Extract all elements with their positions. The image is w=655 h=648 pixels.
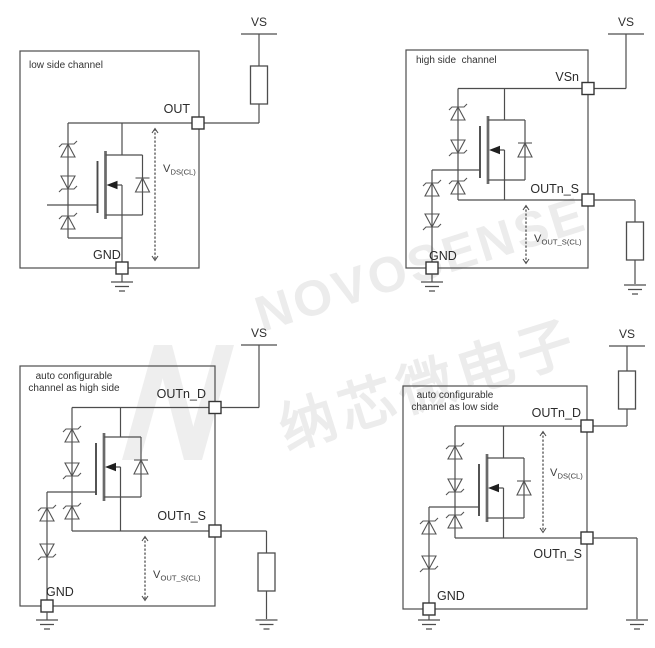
gate-zener-chain [446,426,464,538]
vs-supply: VS [204,15,277,123]
vs-label: VS [618,15,634,29]
ground-icon [36,620,58,629]
diagram-title: low side channel [29,60,103,71]
output-ground-branch [593,538,648,629]
out-s-pad-label: OUTn_S [530,182,579,196]
channel-box [20,51,199,268]
diagram-title-line2: channel as low side [411,402,499,413]
gnd-pad [426,262,438,274]
ground-icon [256,620,278,629]
out-d-pad [209,402,221,414]
gate-zener-chain [449,89,467,201]
vs-supply: VS [594,15,644,89]
vs-label: VS [619,327,635,341]
diagram-low-side: low side channel VS V DS(CL) OU [20,15,277,291]
resistor [258,553,275,591]
out-s-pad [581,532,593,544]
diagram-title-line1: auto configurable [417,390,494,401]
watermark: NOVOSENSE 纳芯微电子 [122,186,593,462]
ground-icon [111,282,133,291]
ground-icon [418,620,440,629]
mosfet-symbol [480,116,532,184]
gnd-label: GND [93,248,121,262]
out-d-pad [581,420,593,432]
voltage-label-sub: OUT_S(CL) [161,574,202,583]
diagram-title-line1: auto configurable [36,371,113,382]
diagram-title: high side channel [416,55,497,66]
out-s-pad-label: OUTn_S [157,509,206,523]
mosfet-symbol [98,151,150,219]
gnd-label: GND [437,589,465,603]
voltage-label-sub: DS(CL) [171,168,197,177]
circuit-schematics: NOVOSENSE 纳芯微电子 low side channel VS [0,0,655,648]
gate-gnd-zener-chain [38,492,56,600]
ground-icon [624,285,646,294]
vsn-pad-label: VSn [555,70,579,84]
load-resistor-branch [594,200,646,294]
gate-zener-chain [59,123,77,238]
out-d-pad-label: OUTn_D [532,406,581,420]
out-s-pad [209,525,221,537]
vout-annotation: V OUT_S(CL) [142,537,201,601]
gate-zener-chain [63,408,81,532]
vds-annotation: V DS(CL) [540,432,583,533]
out-pad-label: OUT [164,102,191,116]
gnd-pad [423,603,435,615]
resistor [251,66,268,104]
gate-gnd-zener-chain [420,507,438,603]
gnd-pad [41,600,53,612]
mosfet-symbol [479,454,531,522]
load-resistor-branch [221,531,278,629]
resistor [627,222,644,260]
schematic-canvas: NOVOSENSE 纳芯微电子 low side channel VS [0,0,655,648]
out-s-pad [582,194,594,206]
vsn-pad [582,83,594,95]
vds-annotation: V DS(CL) [152,129,196,261]
diagram-title-line2: channel as high side [28,383,120,394]
out-s-pad-label: OUTn_S [533,547,582,561]
vs-supply: VS [593,327,645,426]
gnd-label: GND [429,249,457,263]
vs-label: VS [251,15,267,29]
gnd-label: GND [46,585,74,599]
resistor [619,371,636,409]
out-pad [192,117,204,129]
watermark-chinese: 纳芯微电子 [272,308,587,461]
voltage-label-sub: OUT_S(CL) [542,238,583,247]
out-d-pad-label: OUTn_D [157,387,206,401]
voltage-label-sub: DS(CL) [558,472,584,481]
gnd-pad [116,262,128,274]
ground-icon [626,620,648,629]
vs-label: VS [251,326,267,340]
